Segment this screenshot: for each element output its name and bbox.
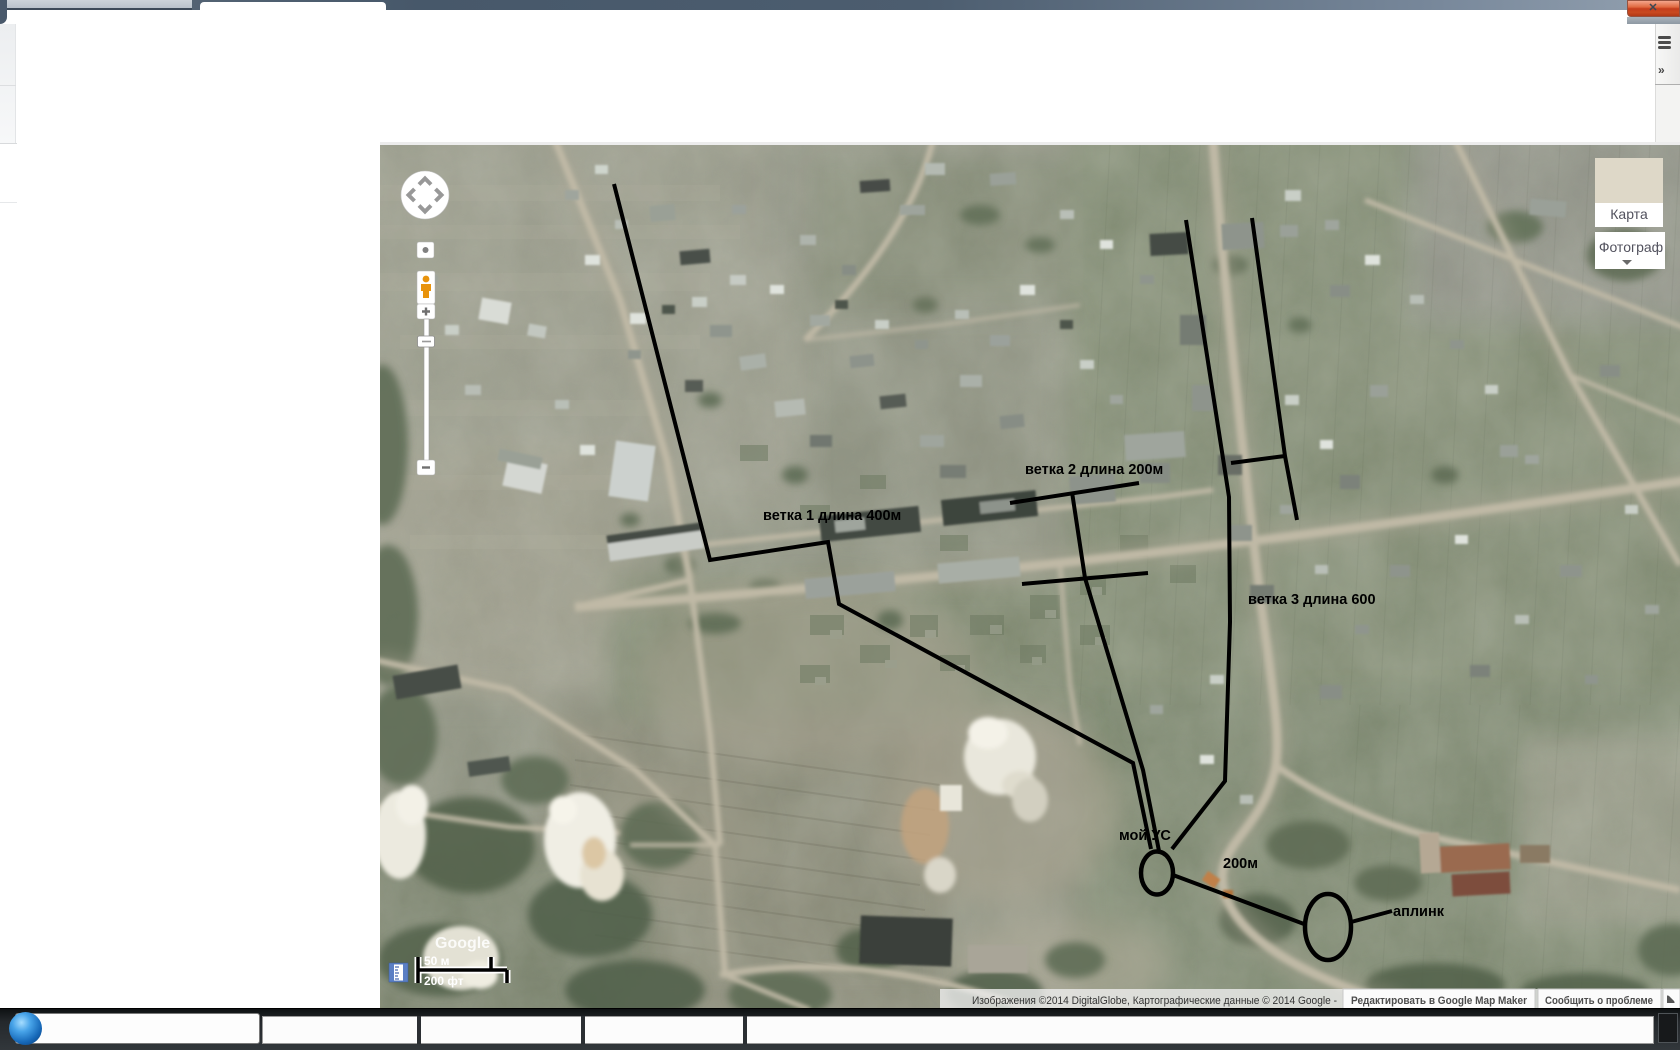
svg-text:аплинк: аплинк [1393,904,1445,920]
svg-text:мой УС: мой УС [1119,828,1171,844]
svg-text:ветка 2 длина 200м: ветка 2 длина 200м [1025,462,1163,478]
svg-text:200м: 200м [1223,856,1258,872]
svg-text:ветка 1 длина 400м: ветка 1 длина 400м [763,508,901,524]
svg-text:ветка 3 длина 600: ветка 3 длина 600 [1248,592,1376,608]
svg-text:200 фт: 200 фт [424,974,464,988]
svg-text:Изображения ©2014 DigitalGlobe: Изображения ©2014 DigitalGlobe, Картогра… [972,995,1337,1007]
svg-text:Google: Google [435,935,490,952]
svg-text:Фотограф: Фотограф [1599,239,1663,255]
svg-text:Сообщить о проблеме: Сообщить о проблеме [1545,995,1653,1007]
svg-text:50 м: 50 м [424,954,450,968]
svg-text:Карта: Карта [1610,206,1648,222]
svg-text:Редактировать в Google Map Mak: Редактировать в Google Map Maker [1351,995,1528,1007]
